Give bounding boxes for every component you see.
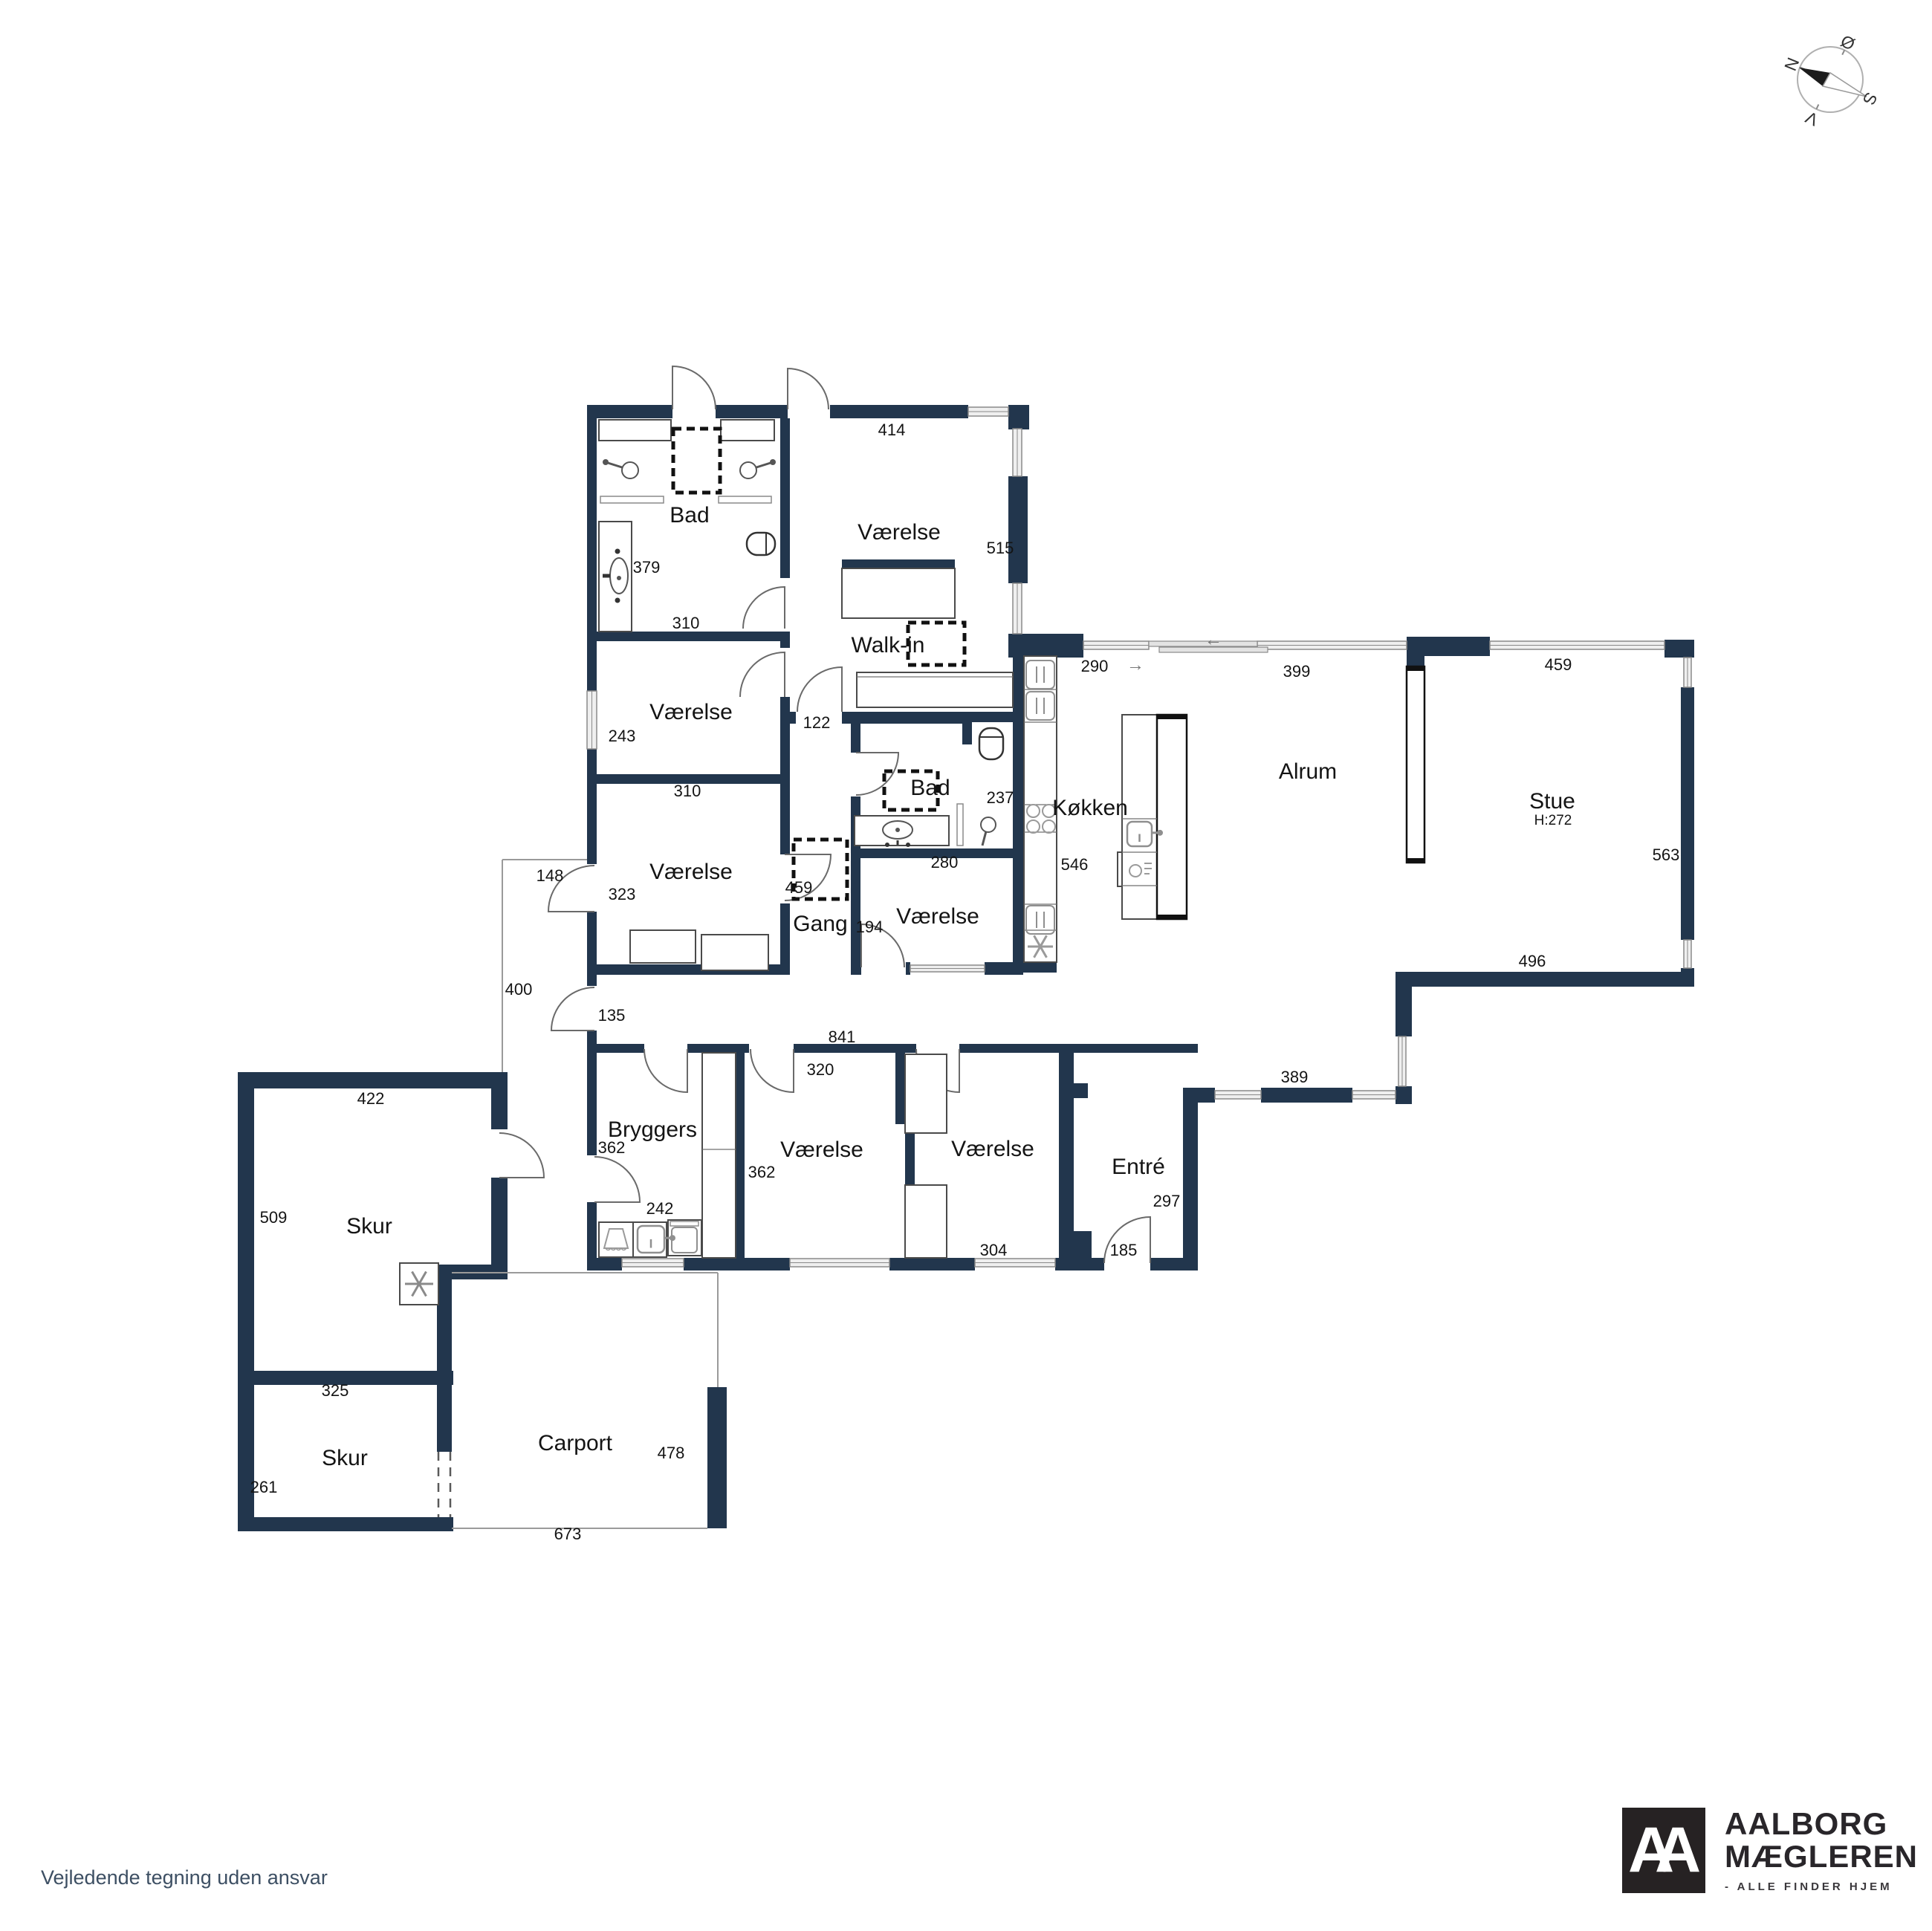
room-label: Walk-in: [852, 633, 925, 658]
brush-handle: [982, 831, 986, 846]
brand-tagline: - ALLE FINDER HJEM: [1725, 1880, 1918, 1893]
shower-valve: [770, 459, 776, 465]
wall: [597, 632, 790, 641]
dim-label: 389: [1281, 1068, 1309, 1086]
wall: [780, 418, 790, 578]
furniture: [702, 1053, 736, 1258]
dim-label: 673: [554, 1525, 582, 1543]
wall: [1395, 987, 1412, 1036]
compass-letter: Ø: [1838, 31, 1858, 54]
room-label: Køkken: [1052, 796, 1128, 820]
wall: [437, 1385, 452, 1452]
wall: [1059, 1053, 1074, 1258]
sink-tap: [615, 549, 620, 554]
wall: [1407, 637, 1490, 656]
dim-label: 459: [1545, 655, 1572, 674]
dim-label: 379: [633, 558, 661, 577]
dim-label: 323: [609, 885, 636, 903]
room-label: Skur: [322, 1446, 368, 1470]
wall: [780, 641, 790, 648]
dim-label: 362: [748, 1163, 776, 1181]
wall: [830, 405, 968, 418]
wall: [1008, 405, 1029, 429]
wall: [238, 1385, 254, 1531]
furniture: [905, 1185, 947, 1258]
dim-label: 261: [250, 1478, 278, 1496]
door-swing: [788, 369, 829, 409]
shower-valve: [603, 459, 609, 465]
furniture: [855, 816, 949, 846]
door-swing: [856, 753, 898, 795]
wall: [587, 749, 597, 864]
floor-plan-page: →←BadVærelseWalk-inVærelseVærelseGangBad…: [0, 0, 1932, 1931]
dim-label: 310: [672, 614, 700, 632]
dim-label: 185: [1110, 1241, 1138, 1259]
dim-label: 509: [260, 1208, 288, 1227]
towel-rail: [719, 496, 771, 503]
door-swing: [740, 652, 785, 697]
wall: [1183, 1088, 1198, 1270]
furniture: [599, 420, 671, 441]
disclaimer-text: Vejledende tegning uden ansvar: [41, 1866, 328, 1889]
dim-label: 310: [674, 782, 701, 800]
room-label: Værelse: [649, 860, 733, 884]
wall: [895, 1053, 905, 1124]
logo-letter-a: A: [1655, 1818, 1701, 1882]
brand-logo-text: AALBORG MÆGLEREN - ALLE FINDER HJEM: [1725, 1808, 1918, 1893]
shower-head-icon: [622, 462, 638, 478]
dim-label: 290: [1081, 657, 1109, 675]
door-swing: [551, 987, 594, 1031]
dim-label: 459: [785, 878, 813, 897]
pillar: [1157, 715, 1187, 919]
room-label: Entré: [1112, 1155, 1165, 1179]
sink-dot: [906, 843, 910, 847]
wall: [1407, 656, 1424, 666]
wall: [1013, 658, 1023, 962]
dim-label: 362: [598, 1138, 626, 1157]
dim-label: 515: [987, 539, 1014, 557]
wall: [587, 405, 597, 691]
furniture: [721, 420, 774, 441]
room-label: Skur: [346, 1214, 392, 1239]
wall: [1074, 1083, 1088, 1098]
towel-rail: [600, 496, 664, 503]
brand-logo-mark: A A: [1622, 1808, 1705, 1893]
pillar-cap: [1407, 666, 1424, 671]
compass-letter: S: [1859, 89, 1881, 108]
dashed-skylight: [673, 429, 720, 493]
dresser: [857, 672, 1013, 707]
dim-label: 841: [829, 1028, 856, 1046]
wall: [1681, 687, 1694, 940]
bed: [842, 568, 955, 618]
room-label: Bad: [670, 503, 709, 528]
wall: [999, 962, 1057, 973]
dim-label: 280: [931, 853, 959, 872]
dim-label: 242: [646, 1199, 674, 1218]
sink-drain: [617, 576, 621, 580]
wall: [1150, 1258, 1198, 1270]
wall: [1395, 1086, 1412, 1104]
toilet-icon: [747, 533, 775, 555]
wall: [736, 1053, 745, 1258]
wall: [889, 1258, 975, 1270]
room-label: Værelse: [896, 904, 979, 929]
slider-arrow-icon: ←: [1205, 629, 1222, 649]
wall: [780, 712, 796, 724]
door-swing: [644, 1049, 687, 1092]
door-swing: [751, 1049, 794, 1092]
wall: [587, 1258, 622, 1270]
compass-letter: N: [1780, 55, 1803, 74]
sink-tap-dot: [1157, 830, 1163, 836]
sliding-door: [1149, 641, 1257, 646]
toilet-icon: [979, 728, 1003, 759]
shower-arm: [608, 463, 622, 467]
dim-label: 496: [1519, 952, 1546, 970]
furniture: [1118, 852, 1122, 886]
wall: [491, 1072, 508, 1129]
floor-plan-svg: →←BadVærelseWalk-inVærelseVærelseGangBad…: [0, 0, 1932, 1931]
slider-arrow-icon: →: [1127, 655, 1144, 675]
wall: [587, 405, 672, 418]
wall: [238, 1072, 254, 1371]
dim-label: 422: [357, 1089, 385, 1108]
towel-rail: [957, 804, 963, 846]
dim-label: 148: [537, 866, 564, 885]
wall: [851, 712, 860, 753]
wall: [707, 1387, 727, 1528]
dim-label: 546: [1061, 855, 1089, 874]
sink-dot: [885, 843, 889, 847]
dim-label: 478: [658, 1444, 685, 1462]
compass-needle-south: [1823, 73, 1867, 97]
wall: [851, 962, 861, 975]
wall: [1008, 634, 1083, 658]
dim-label: 563: [1653, 846, 1680, 864]
wall: [437, 1517, 452, 1531]
shower-head-icon: [740, 462, 756, 478]
dim-label: 304: [980, 1241, 1008, 1259]
toilet-brush-icon: [981, 817, 996, 832]
room-label: Værelse: [951, 1137, 1034, 1161]
brand-logo: A A AALBORG MÆGLEREN - ALLE FINDER HJEM: [1622, 1808, 1918, 1893]
door-swing: [743, 587, 785, 629]
door-swing: [797, 667, 842, 712]
dim-label: 320: [807, 1060, 834, 1079]
compass-letter: V: [1802, 107, 1821, 129]
wall: [491, 1178, 508, 1265]
furniture: [599, 1222, 633, 1257]
brand-name-line2: MÆGLEREN: [1725, 1840, 1918, 1873]
dim-label: 297: [1153, 1192, 1181, 1210]
furniture: [630, 930, 696, 963]
wall: [959, 1044, 1198, 1053]
pillar-cap: [1407, 858, 1424, 863]
brand-name-line1: AALBORG: [1725, 1808, 1918, 1840]
wall: [1008, 476, 1028, 583]
wall: [1664, 640, 1694, 658]
furniture: [905, 1054, 947, 1133]
dim-label: 243: [609, 727, 636, 745]
room-label: Værelse: [780, 1137, 863, 1162]
dim-label: 237: [987, 788, 1014, 807]
sink-drain: [895, 828, 900, 832]
pillar-cap: [1157, 715, 1187, 719]
room-label: Bad: [910, 776, 950, 800]
room-label: Carport: [538, 1431, 613, 1455]
dim-label: 399: [1283, 662, 1311, 681]
dim-label: 414: [878, 421, 906, 439]
wall: [587, 1044, 644, 1053]
dim-label: 325: [322, 1381, 349, 1400]
bed-headboard: [842, 559, 955, 568]
wall: [1261, 1088, 1352, 1103]
room-label: Alrum: [1279, 759, 1337, 784]
compass-tick: [1816, 105, 1818, 109]
door-swing: [594, 1157, 640, 1202]
door-swing: [499, 1133, 544, 1178]
wall: [687, 1044, 749, 1053]
shower-arm: [756, 463, 771, 467]
wall: [238, 1517, 453, 1531]
sink-tap: [615, 598, 620, 603]
wall: [1074, 1231, 1092, 1259]
furniture: [701, 935, 768, 970]
ceiling-height-label: H:272: [1534, 813, 1572, 828]
room-label: Gang: [793, 912, 847, 936]
wall: [962, 722, 972, 744]
door-swing: [672, 366, 716, 409]
dim-label: 400: [505, 980, 533, 999]
pillar-cap: [1157, 915, 1187, 919]
room-label: Værelse: [649, 700, 733, 724]
wall: [780, 903, 790, 973]
dim-label: 194: [856, 918, 884, 936]
wall: [716, 405, 788, 418]
wall: [1395, 972, 1694, 987]
room-label: Værelse: [858, 520, 941, 545]
room-label: Stue: [1529, 789, 1575, 814]
dim-label: 135: [598, 1006, 626, 1025]
pillar: [1407, 666, 1424, 863]
wall: [238, 1072, 508, 1088]
dim-label: 122: [803, 713, 831, 732]
wall: [684, 1258, 790, 1270]
wall: [1055, 1258, 1104, 1270]
wall: [906, 962, 910, 975]
